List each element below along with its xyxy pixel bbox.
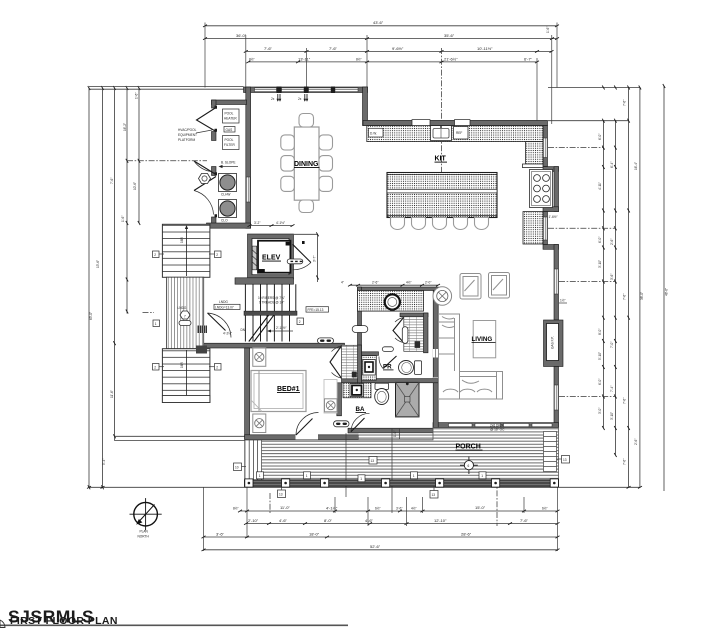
svg-text:1: 1 <box>259 474 261 478</box>
svg-text:3'-6": 3'-6" <box>610 274 614 280</box>
svg-text:7'-6": 7'-6" <box>622 294 626 300</box>
svg-text:11'-6": 11'-6" <box>110 390 114 398</box>
svg-text:CLO: CLO <box>221 219 228 223</box>
svg-text:5'-4": 5'-4" <box>102 459 106 465</box>
svg-text:CLHW: CLHW <box>221 193 230 197</box>
svg-text:6½": 6½" <box>375 507 381 511</box>
svg-text:LNDG: LNDG <box>178 306 187 310</box>
svg-text:8'-0": 8'-0" <box>598 329 602 335</box>
svg-text:2: 2 <box>216 366 218 370</box>
svg-text:DN: DN <box>241 328 246 332</box>
svg-text:LIVING: LIVING <box>472 336 493 343</box>
svg-text:7: 7 <box>184 315 186 319</box>
svg-text:1: 1 <box>481 474 483 478</box>
svg-text:13'-11": 13'-11" <box>298 56 311 61</box>
svg-text:28'-6": 28'-6" <box>461 531 472 536</box>
svg-text:2: 2 <box>154 253 156 257</box>
svg-text:6'-0": 6'-0" <box>598 134 602 140</box>
svg-text:ELEV: ELEV <box>262 255 281 262</box>
svg-text:13: 13 <box>279 493 283 497</box>
svg-text:13'-6": 13'-6" <box>96 260 100 268</box>
svg-text:6½": 6½" <box>542 507 548 511</box>
svg-text:LNDG: LNDG <box>219 300 228 304</box>
svg-text:10 RISERS @ 7¾": 10 RISERS @ 7¾" <box>258 296 285 300</box>
svg-text:10'-6": 10'-6" <box>133 182 137 190</box>
svg-text:B. SLOPE: B. SLOPE <box>221 161 236 165</box>
svg-text:1'-6": 1'-6" <box>135 93 139 99</box>
svg-text:REF: REF <box>456 131 462 135</box>
svg-text:6'-7": 6'-7" <box>524 56 533 61</box>
svg-text:2'-0": 2'-0" <box>425 281 431 285</box>
svg-text:9'-6½": 9'-6½" <box>392 46 404 51</box>
svg-text:2'-6": 2'-6" <box>634 439 638 445</box>
svg-text:4'-1½": 4'-1½" <box>326 506 338 511</box>
svg-text:16'-2": 16'-2" <box>123 123 127 131</box>
svg-text:2'-6": 2'-6" <box>372 281 378 285</box>
svg-text:1: 1 <box>413 474 415 478</box>
svg-text:3'-2": 3'-2" <box>254 221 260 225</box>
svg-text:11'-0": 11'-0" <box>280 505 290 510</box>
svg-text:18'-0": 18'-0" <box>309 531 320 536</box>
svg-text:63'-0": 63'-0" <box>89 312 93 320</box>
svg-text:16R: 16R <box>180 361 184 368</box>
svg-text:35'-6": 35'-6" <box>444 33 455 38</box>
svg-text:BA: BA <box>356 406 365 413</box>
svg-text:2: 2 <box>299 320 301 324</box>
svg-text:43'-6": 43'-6" <box>373 20 384 25</box>
svg-text:38'-0": 38'-0" <box>640 292 644 300</box>
svg-text:4'-6": 4'-6" <box>279 518 288 523</box>
svg-text:GAS F.P.: GAS F.P. <box>551 336 555 349</box>
svg-text:4'-6": 4'-6" <box>365 518 374 523</box>
svg-text:EQUIPMENT: EQUIPMENT <box>178 133 197 137</box>
svg-text:7'-0": 7'-0" <box>610 342 614 348</box>
svg-text:7'-6": 7'-6" <box>520 518 529 523</box>
svg-text:2'-11½": 2'-11½" <box>276 326 287 330</box>
svg-text:1'-6": 1'-6" <box>546 27 550 33</box>
svg-text:POOL: POOL <box>225 112 234 116</box>
svg-text:16R: 16R <box>180 236 184 243</box>
svg-text:6'-4": 6'-4" <box>610 162 614 168</box>
svg-text:PORCH: PORCH <box>456 444 481 451</box>
svg-text:13: 13 <box>371 459 375 463</box>
svg-text:3'-7": 3'-7" <box>313 256 317 262</box>
svg-text:7'-6": 7'-6" <box>110 178 114 184</box>
svg-text:2x: 2x <box>271 97 275 101</box>
svg-text:15'-0": 15'-0" <box>475 505 486 510</box>
svg-text:9 TREADS @ 10": 9 TREADS @ 10" <box>259 301 284 305</box>
svg-text:FILTER: FILTER <box>224 143 235 147</box>
svg-text:BED#1: BED#1 <box>277 386 300 393</box>
svg-text:4½": 4½" <box>406 281 412 285</box>
svg-text:2: 2 <box>154 366 156 370</box>
svg-text:4'-11": 4'-11" <box>598 182 602 190</box>
svg-text:HEATER: HEATER <box>224 117 237 121</box>
svg-text:6: 6 <box>468 464 470 468</box>
svg-text:3'-0": 3'-0" <box>598 408 602 414</box>
svg-text:21'-6½": 21'-6½" <box>444 56 458 61</box>
svg-text:FFE=15.13: FFE=15.13 <box>308 308 324 312</box>
svg-text:1'-6": 1'-6" <box>121 216 125 222</box>
svg-text:1: 1 <box>155 322 157 326</box>
svg-text:1'-0": 1'-0" <box>393 431 397 437</box>
svg-text:12'-10": 12'-10" <box>434 518 447 523</box>
svg-text:3'-6": 3'-6" <box>396 507 402 511</box>
svg-text:7'-4": 7'-4" <box>610 386 614 392</box>
svg-text:6'-0": 6'-0" <box>598 237 602 243</box>
svg-text:16'-4": 16'-4" <box>634 162 638 170</box>
svg-text:13: 13 <box>563 458 567 462</box>
svg-text:10: 10 <box>235 466 239 470</box>
svg-text:8½": 8½" <box>356 57 362 61</box>
svg-text:GAS: GAS <box>226 128 233 132</box>
svg-text:4'-2½": 4'-2½" <box>223 332 232 336</box>
svg-text:13: 13 <box>432 493 436 497</box>
svg-text:8'-0": 8'-0" <box>324 518 333 523</box>
svg-text:3'-10": 3'-10" <box>598 260 602 268</box>
svg-text:2'-6": 2'-6" <box>610 239 614 245</box>
svg-text:8½": 8½" <box>249 57 255 61</box>
svg-text:7'-6": 7'-6" <box>622 100 626 106</box>
svg-text:7'-6": 7'-6" <box>329 46 338 51</box>
svg-text:NORTH: NORTH <box>138 535 150 539</box>
svg-text:36'-0": 36'-0" <box>236 33 247 38</box>
svg-text:@ 16" OC: @ 16" OC <box>490 428 505 432</box>
svg-text:SJSRMLS: SJSRMLS <box>8 607 94 627</box>
svg-text:10'-11½": 10'-11½" <box>477 46 493 51</box>
svg-text:2x: 2x <box>298 97 302 101</box>
svg-text:1½": 1½" <box>560 299 566 303</box>
svg-text:1: 1 <box>360 477 362 481</box>
svg-text:4½": 4½" <box>411 507 417 511</box>
svg-text:48'-6": 48'-6" <box>665 288 669 296</box>
svg-text:1: 1 <box>306 474 308 478</box>
svg-text:1'-6½": 1'-6½" <box>549 215 558 219</box>
svg-text:4'-1½": 4'-1½" <box>276 221 285 225</box>
svg-text:7'-6": 7'-6" <box>622 398 626 404</box>
svg-text:5'-10": 5'-10" <box>598 352 602 360</box>
svg-text:8½": 8½" <box>233 507 239 511</box>
svg-text:PR: PR <box>383 364 392 371</box>
svg-text:3'-10": 3'-10" <box>610 412 614 420</box>
svg-text:PLAN: PLAN <box>140 530 149 534</box>
svg-text:2'-10": 2'-10" <box>248 518 259 523</box>
svg-text:4": 4" <box>341 281 344 285</box>
svg-text:52'-6": 52'-6" <box>370 544 381 549</box>
svg-text:2: 2 <box>216 253 218 257</box>
svg-text:D.W.: D.W. <box>370 132 377 136</box>
svg-text:7'-6": 7'-6" <box>622 459 626 465</box>
svg-text:PLATFORM: PLATFORM <box>178 138 195 142</box>
svg-text:POOL: POOL <box>225 138 234 142</box>
svg-text:DINING: DINING <box>294 161 319 168</box>
svg-text:HVAC/POOL: HVAC/POOL <box>178 128 197 132</box>
svg-text:KIT: KIT <box>435 156 447 163</box>
svg-text:7'-6": 7'-6" <box>264 46 273 51</box>
svg-text:3'-6": 3'-6" <box>216 531 225 536</box>
svg-text:6'-0": 6'-0" <box>598 379 602 385</box>
svg-text:LNDG=13.07: LNDG=13.07 <box>215 306 234 310</box>
